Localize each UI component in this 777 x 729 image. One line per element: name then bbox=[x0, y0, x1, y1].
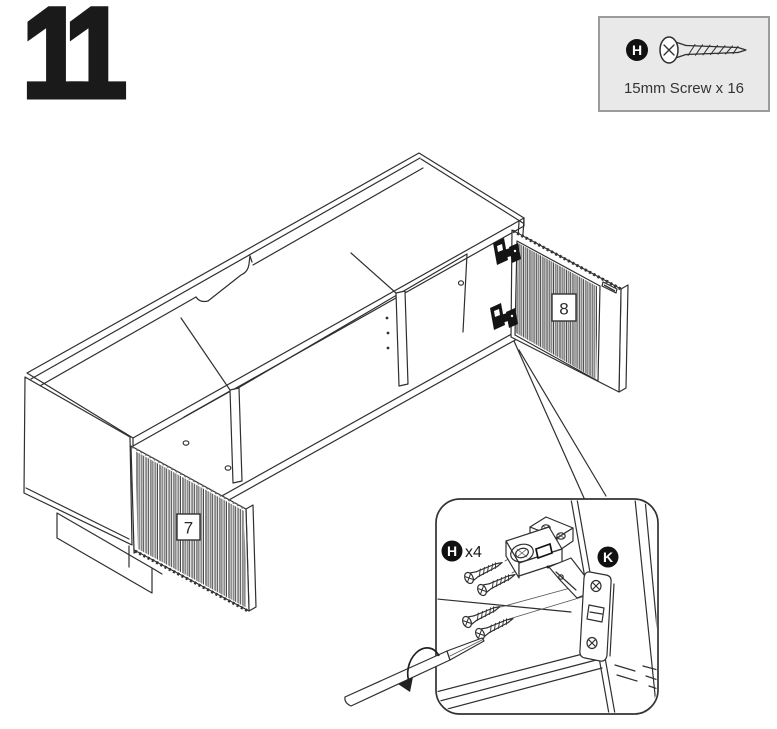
instruction-page: 11 H 15mm Screw x 16 bbox=[0, 0, 777, 729]
shelf-pin-hole bbox=[387, 347, 390, 350]
part-badge-h-callout: H bbox=[442, 541, 463, 562]
screw-hole bbox=[459, 281, 464, 285]
screw-count-label: x4 bbox=[465, 544, 482, 561]
door-8-label: 8 bbox=[552, 294, 576, 321]
door-7-label: 7 bbox=[177, 514, 200, 540]
svg-text:7: 7 bbox=[184, 519, 193, 538]
screw-hole bbox=[183, 441, 189, 445]
svg-text:H: H bbox=[447, 543, 457, 559]
svg-text:K: K bbox=[603, 549, 613, 565]
part-badge-k: K bbox=[598, 547, 619, 568]
screw-hole bbox=[225, 466, 231, 470]
svg-text:8: 8 bbox=[559, 300, 568, 319]
shelf-pin-hole bbox=[387, 332, 390, 335]
assembly-diagram: 7 8 bbox=[0, 0, 777, 729]
shelf-pin-hole bbox=[386, 317, 389, 320]
door-8: 8 bbox=[511, 228, 628, 395]
